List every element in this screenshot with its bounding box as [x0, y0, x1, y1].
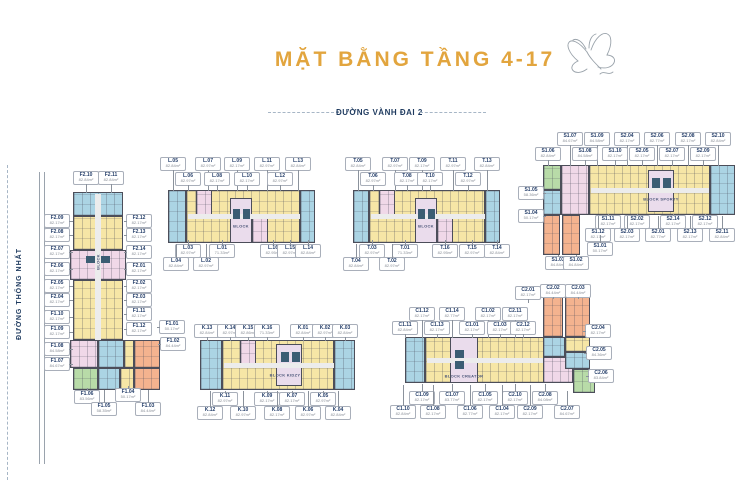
unit-area: 82.84m²: [161, 164, 185, 169]
unit-area: 82.17m²: [255, 399, 279, 404]
unit-area: 82.17m²: [127, 235, 151, 240]
unit-label-T.01: T.0171.33m²: [392, 244, 418, 258]
unit-label-F1.09: F1.0982.17m²: [44, 325, 70, 339]
unit-label-T.14: T.1482.84m²: [484, 244, 510, 258]
unit-area: 82.17m²: [678, 235, 702, 240]
unit-label-K.16: K.1671.33m²: [254, 324, 280, 338]
unit-label-K.05: K.0582.97m²: [310, 392, 336, 406]
unit-area: 82.17m²: [473, 398, 497, 403]
floor-plan-canvas: MẶT BẰNG TẦNG 4-17 ĐƯỜNG VÀNH ĐAI 2 ĐƯỜN…: [0, 0, 750, 500]
unit-label-C1.14: C1.1482.77m²: [439, 307, 465, 321]
unit-label-S1.08: S1.0884.58m²: [572, 147, 598, 161]
unit-label-C1.04: C1.0482.17m²: [489, 405, 515, 419]
unit-area: 82.17m²: [410, 398, 434, 403]
unit-area: 82.97m²: [176, 251, 200, 256]
unit-label-S2.14: S2.1482.17m²: [660, 215, 686, 229]
unit-label-C1.13: C1.1382.17m²: [424, 321, 450, 335]
unit-label-C2.04: C2.0482.17m²: [585, 324, 611, 338]
unit-area: 82.84m²: [195, 331, 219, 336]
unit-area: 82.17m²: [410, 164, 434, 169]
unit-area: 50.17m²: [160, 327, 184, 332]
unit-label-C1.10: C1.1082.84m²: [390, 405, 416, 419]
unit-area: 82.84m²: [706, 139, 730, 144]
unit-label-S2.07: S2.0782.17m²: [659, 147, 685, 161]
unit-area: 82.17m²: [615, 235, 639, 240]
unit-label-T.06: T.0682.97m²: [360, 172, 386, 186]
unit-area: 82.17m²: [127, 286, 151, 291]
unit-label-C2.01: C2.0182.17m²: [515, 286, 541, 300]
unit-area: 82.17m²: [45, 252, 69, 257]
unit-area: 82.77m²: [645, 139, 669, 144]
unit-area: 82.17m²: [127, 269, 151, 274]
unit-area: 83.56m²: [75, 397, 99, 402]
unit-area: 82.17m²: [460, 328, 484, 333]
unit-label-F2.01: F2.0182.17m²: [126, 262, 152, 276]
unit-label-F1.11: F1.1182.17m²: [126, 307, 152, 321]
unit-area: 82.17m²: [127, 300, 151, 305]
unit-area: 82.97m²: [441, 164, 465, 169]
unit-area: 82.17m²: [45, 286, 69, 291]
unit-label-S2.08: S2.0882.17m²: [675, 132, 701, 146]
unit-label-S1.07: S1.0784.67m²: [557, 132, 583, 146]
unit-area: 84.67m²: [555, 412, 579, 417]
unit-label-L.08: L.0882.17m²: [204, 172, 230, 186]
unit-label-S1.04: S1.0450.17m²: [518, 209, 544, 223]
unit-label-C2.08: C2.0884.08m²: [532, 391, 558, 405]
unit-label-C2.11: C2.1182.17m²: [502, 307, 528, 321]
unit-label-F1.03: F1.0384.44m²: [135, 402, 161, 416]
unit-area: 82.17m²: [421, 412, 445, 417]
unit-area: 82.17m²: [676, 139, 700, 144]
unit-area: 84.84m²: [564, 263, 588, 268]
unit-area: 82.97m²: [456, 179, 480, 184]
unit-area: 82.97m²: [213, 399, 237, 404]
unit-area: 82.17m²: [280, 399, 304, 404]
unit-area: 82.97m²: [268, 179, 292, 184]
unit-label-C1.08: C1.0882.17m²: [420, 405, 446, 419]
unit-label-C2.06: C2.0683.84m²: [588, 369, 614, 383]
unit-area: 50.17m²: [588, 249, 612, 254]
unit-area: 82.17m²: [511, 328, 535, 333]
unit-area: 82.77m²: [646, 235, 670, 240]
unit-area: 82.97m²: [296, 413, 320, 418]
unit-area: 82.17m²: [630, 154, 654, 159]
unit-area: 82.17m²: [45, 317, 69, 322]
unit-area: 82.97m²: [383, 164, 407, 169]
unit-area: 82.17m²: [518, 412, 542, 417]
labels-layer: F2.1082.84m²F2.1182.84m²F2.0982.17m²F2.0…: [0, 0, 750, 500]
unit-area: 82.17m²: [225, 164, 249, 169]
unit-label-T.12: T.1282.97m²: [455, 172, 481, 186]
unit-area: 82.97m²: [380, 264, 404, 269]
unit-area: 82.84m²: [391, 412, 415, 417]
unit-area: 82.17m²: [235, 179, 259, 184]
unit-label-C2.02: C2.0284.44m²: [540, 284, 566, 298]
unit-area: 82.17m²: [516, 293, 540, 298]
unit-label-F1.07: F1.0784.67m²: [44, 357, 70, 371]
unit-label-S2.06: S2.0682.77m²: [644, 132, 670, 146]
unit-label-S1.10: S1.1082.17m²: [602, 147, 628, 161]
unit-label-L.11: L.1182.97m²: [254, 157, 280, 171]
unit-area: 82.17m²: [660, 154, 684, 159]
unit-label-S1.01: S1.0150.17m²: [587, 242, 613, 256]
unit-label-K.07: K.0782.17m²: [279, 392, 305, 406]
unit-area: 82.77m²: [440, 314, 464, 319]
unit-label-K.10: K.1082.97m²: [230, 406, 256, 420]
unit-area: 58.35m²: [92, 409, 116, 414]
unit-label-F2.06: F2.0682.17m²: [44, 262, 70, 276]
unit-label-S2.05: S2.0582.17m²: [629, 147, 655, 161]
unit-label-F2.09: F2.0982.17m²: [44, 214, 70, 228]
unit-label-C2.07: C2.0784.67m²: [554, 405, 580, 419]
unit-area: 83.84m²: [589, 376, 613, 381]
unit-label-C1.07: C1.0783.77m²: [439, 391, 465, 405]
unit-label-S2.01: S2.0182.77m²: [645, 228, 671, 242]
unit-area: 82.84m²: [536, 154, 560, 159]
unit-label-C1.11: C1.1182.84m²: [392, 321, 418, 335]
unit-label-T.13: T.1382.84m²: [474, 157, 500, 171]
unit-area: 82.17m²: [693, 222, 717, 227]
unit-area: 82.17m²: [691, 154, 715, 159]
unit-area: 82.17m²: [127, 329, 151, 334]
unit-area: 83.77m²: [440, 398, 464, 403]
unit-label-F2.13: F2.1382.17m²: [126, 228, 152, 242]
unit-label-C1.09: C1.0982.17m²: [409, 391, 435, 405]
unit-label-C1.06: C1.0682.77m²: [457, 405, 483, 419]
unit-label-F1.02: F1.0284.44m²: [160, 337, 186, 351]
unit-area: 84.58m²: [45, 349, 69, 354]
unit-label-K.08: K.0882.17m²: [264, 406, 290, 420]
unit-area: 82.84m²: [475, 164, 499, 169]
unit-area: 71.33m²: [255, 331, 279, 336]
unit-area: 82.84m²: [344, 264, 368, 269]
unit-label-S1.05: S1.0558.36m²: [518, 186, 544, 200]
unit-label-K.12: K.1282.84m²: [197, 406, 223, 420]
unit-area: 82.17m²: [395, 179, 419, 184]
unit-area: 84.44m²: [541, 291, 565, 296]
unit-area: 82.17m²: [661, 222, 685, 227]
unit-label-C1.02: C1.0282.17m²: [475, 307, 501, 321]
unit-area: 82.84m²: [198, 413, 222, 418]
unit-label-S1.06: S1.0682.84m²: [535, 147, 561, 161]
unit-area: 82.17m²: [45, 269, 69, 274]
unit-area: 82.17m²: [205, 179, 229, 184]
unit-label-L.09: L.0982.17m²: [224, 157, 250, 171]
unit-area: 82.84m²: [346, 164, 370, 169]
unit-area: 82.17m²: [490, 412, 514, 417]
unit-area: 84.44m²: [566, 291, 590, 296]
unit-area: 84.67m²: [558, 139, 582, 144]
unit-area: 82.17m²: [596, 222, 620, 227]
unit-area: 82.97m²: [196, 164, 220, 169]
unit-area: 82.17m²: [586, 331, 610, 336]
unit-area: 84.44m²: [161, 344, 185, 349]
unit-label-T.11: T.1182.97m²: [440, 157, 466, 171]
unit-area: 82.97m²: [361, 179, 385, 184]
unit-area: 82.97m²: [460, 251, 484, 256]
unit-label-F1.10: F1.1082.17m²: [44, 310, 70, 324]
unit-label-L.01: L.0171.33m²: [209, 244, 235, 258]
unit-area: 82.17m²: [603, 154, 627, 159]
unit-label-T.15: T.1582.97m²: [459, 244, 485, 258]
unit-area: 82.17m²: [503, 398, 527, 403]
unit-label-L.07: L.0782.97m²: [195, 157, 221, 171]
unit-area: 82.84m²: [164, 264, 188, 269]
unit-label-L.04: L.0482.84m²: [163, 257, 189, 271]
unit-label-C2.09: C2.0982.17m²: [517, 405, 543, 419]
unit-label-F2.05: F2.0582.17m²: [44, 279, 70, 293]
unit-label-F2.08: F2.0882.17m²: [44, 228, 70, 242]
unit-label-S1.02: S1.0284.84m²: [563, 256, 589, 270]
unit-label-C2.12: C2.1282.17m²: [510, 321, 536, 335]
unit-label-T.05: T.0582.84m²: [345, 157, 371, 171]
unit-area: 82.17m²: [410, 314, 434, 319]
unit-label-T.16: T.1682.95m²: [432, 244, 458, 258]
unit-label-S2.13: S2.1382.17m²: [677, 228, 703, 242]
unit-label-S1.12: S1.1282.17m²: [585, 228, 611, 242]
unit-area: 50.17m²: [116, 395, 140, 400]
unit-area: 82.84m²: [326, 413, 350, 418]
unit-label-F1.05: F1.0558.35m²: [91, 402, 117, 416]
unit-area: 82.84m²: [710, 235, 734, 240]
unit-area: 82.84m²: [99, 178, 123, 183]
unit-area: 84.58m²: [573, 154, 597, 159]
unit-label-S2.10: S2.1082.84m²: [705, 132, 731, 146]
unit-area: 82.97m²: [360, 251, 384, 256]
unit-label-F2.07: F2.0782.17m²: [44, 245, 70, 259]
unit-label-S2.12: S2.1282.17m²: [692, 215, 718, 229]
unit-label-T.02: T.0282.97m²: [379, 257, 405, 271]
unit-area: 84.67m²: [45, 364, 69, 369]
unit-area: 82.84m²: [296, 251, 320, 256]
unit-label-F1.12: F1.1282.17m²: [126, 322, 152, 336]
unit-label-F2.10: F2.1082.84m²: [73, 171, 99, 185]
unit-label-S2.04: S2.0482.17m²: [614, 132, 640, 146]
unit-label-F2.11: F2.1182.84m²: [98, 171, 124, 185]
unit-area: 82.84m²: [333, 331, 357, 336]
unit-area: 82.17m²: [127, 314, 151, 319]
unit-label-C1.01: C1.0182.17m²: [459, 321, 485, 335]
unit-area: 58.36m²: [519, 193, 543, 198]
unit-label-F2.12: F2.1282.17m²: [126, 214, 152, 228]
unit-area: 82.17m²: [488, 328, 512, 333]
unit-area: 82.84m²: [74, 178, 98, 183]
unit-area: 82.17m²: [45, 221, 69, 226]
unit-label-F2.03: F2.0382.17m²: [126, 293, 152, 307]
unit-area: 82.17m²: [418, 179, 442, 184]
unit-label-L.13: L.1382.84m²: [285, 157, 311, 171]
unit-area: 84.44m²: [136, 409, 160, 414]
unit-area: 82.97m²: [176, 179, 200, 184]
unit-area: 82.77m²: [458, 412, 482, 417]
unit-label-T.07: T.0782.97m²: [382, 157, 408, 171]
unit-area: 82.17m²: [45, 300, 69, 305]
unit-label-L.03: L.0382.97m²: [175, 244, 201, 258]
unit-area: 82.17m²: [127, 221, 151, 226]
unit-area: 71.33m²: [210, 251, 234, 256]
unit-label-C2.05: C2.0584.36m²: [586, 346, 612, 360]
unit-label-L.06: L.0682.97m²: [175, 172, 201, 186]
unit-area: 84.58m²: [585, 139, 609, 144]
unit-label-F1.04: F1.0450.17m²: [115, 388, 141, 402]
unit-area: 82.17m²: [476, 314, 500, 319]
unit-label-F1.08: F1.0884.58m²: [44, 342, 70, 356]
unit-label-S2.11: S2.1182.84m²: [709, 228, 735, 242]
unit-area: 82.97m²: [311, 399, 335, 404]
unit-label-C2.03: C2.0384.44m²: [565, 284, 591, 298]
unit-area: 82.17m²: [265, 413, 289, 418]
unit-label-K.06: K.0682.97m²: [295, 406, 321, 420]
unit-label-K.03: K.0382.84m²: [332, 324, 358, 338]
unit-label-L.12: L.1282.97m²: [267, 172, 293, 186]
unit-area: 71.33m²: [393, 251, 417, 256]
unit-area: 82.97m²: [255, 164, 279, 169]
unit-area: 82.17m²: [127, 252, 151, 257]
unit-label-S2.09: S2.0982.17m²: [690, 147, 716, 161]
unit-label-F2.04: F2.0482.17m²: [44, 293, 70, 307]
unit-area: 82.17m²: [615, 139, 639, 144]
unit-area: 82.17m²: [625, 222, 649, 227]
unit-area: 82.17m²: [586, 235, 610, 240]
unit-label-T.10: T.1082.17m²: [417, 172, 443, 186]
unit-label-C2.10: C2.1082.17m²: [502, 391, 528, 405]
unit-label-K.11: K.1182.97m²: [212, 392, 238, 406]
unit-label-F2.14: F2.1482.17m²: [126, 245, 152, 259]
unit-label-K.04: K.0482.84m²: [325, 406, 351, 420]
unit-area: 82.84m²: [286, 164, 310, 169]
unit-area: 50.17m²: [519, 216, 543, 221]
unit-area: 82.17m²: [45, 235, 69, 240]
unit-area: 84.36m²: [587, 353, 611, 358]
unit-label-C1.05: C1.0582.17m²: [472, 391, 498, 405]
unit-label-S2.03: S2.0382.17m²: [614, 228, 640, 242]
unit-label-F2.02: F2.0282.17m²: [126, 279, 152, 293]
unit-label-C1.12: C1.1282.17m²: [409, 307, 435, 321]
unit-label-L.02: L.0282.97m²: [193, 257, 219, 271]
unit-area: 84.08m²: [533, 398, 557, 403]
unit-label-T.03: T.0382.97m²: [359, 244, 385, 258]
unit-area: 82.95m²: [433, 251, 457, 256]
unit-area: 82.97m²: [194, 264, 218, 269]
unit-area: 82.17m²: [425, 328, 449, 333]
unit-label-S1.09: S1.0984.58m²: [584, 132, 610, 146]
unit-area: 82.97m²: [231, 413, 255, 418]
unit-area: 82.17m²: [45, 332, 69, 337]
unit-area: 82.17m²: [503, 314, 527, 319]
unit-label-F1.01: F1.0150.17m²: [159, 320, 185, 334]
unit-area: 82.84m²: [393, 328, 417, 333]
unit-label-L.10: L.1082.17m²: [234, 172, 260, 186]
unit-label-L.05: L.0582.84m²: [160, 157, 186, 171]
unit-label-T.09: T.0982.17m²: [409, 157, 435, 171]
unit-label-L.14: L.1482.84m²: [295, 244, 321, 258]
unit-area: 82.84m²: [485, 251, 509, 256]
unit-label-T.04: T.0482.84m²: [343, 257, 369, 271]
